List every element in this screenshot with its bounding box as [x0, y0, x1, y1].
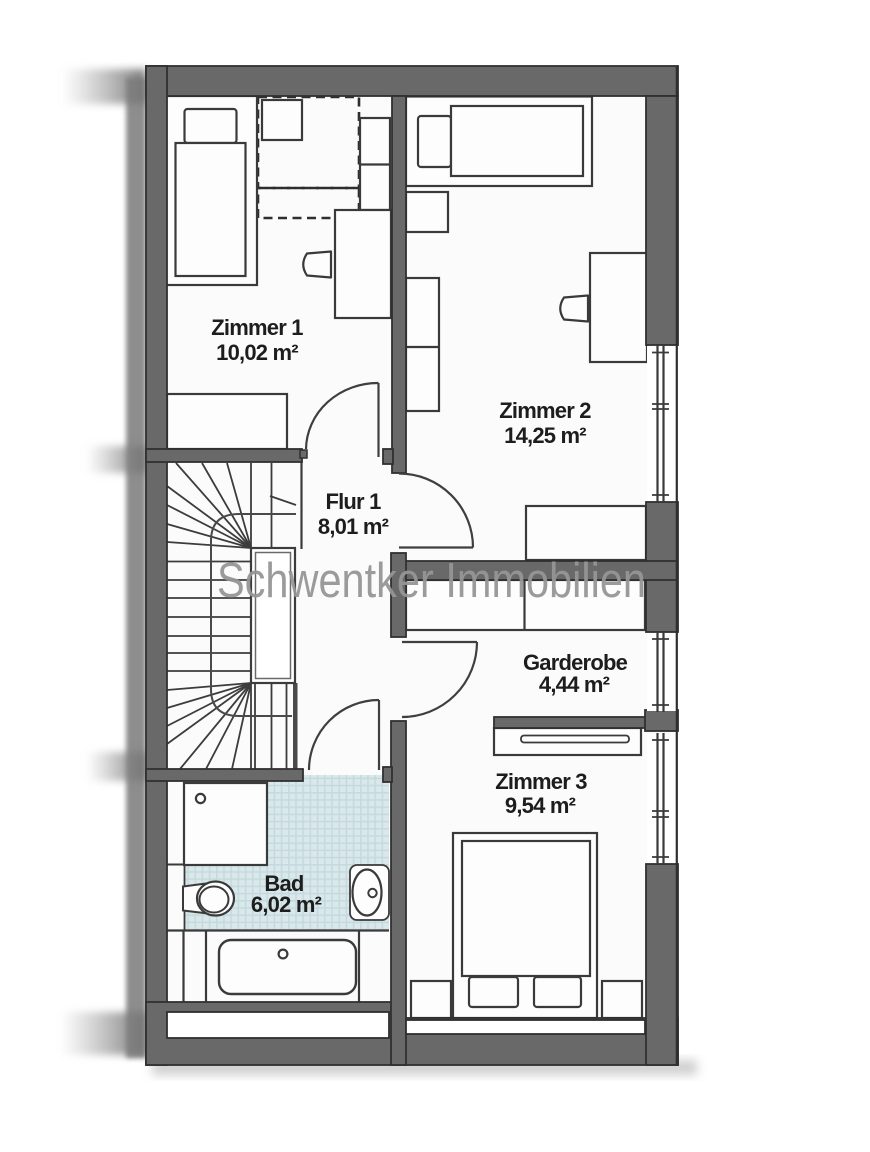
svg-text:10,02 m²: 10,02 m² [216, 340, 298, 365]
svg-text:14,25 m²: 14,25 m² [504, 423, 586, 448]
svg-text:Zimmer 1: Zimmer 1 [211, 315, 303, 340]
svg-text:Zimmer 2: Zimmer 2 [499, 398, 591, 423]
svg-text:8,01 m²: 8,01 m² [318, 514, 389, 539]
svg-text:Zimmer 3: Zimmer 3 [495, 769, 587, 794]
svg-text:4,44 m²: 4,44 m² [539, 672, 610, 697]
svg-text:Flur 1: Flur 1 [325, 489, 381, 514]
svg-text:Schwentker Immobilien: Schwentker Immobilien [217, 554, 646, 608]
svg-text:9,54 m²: 9,54 m² [505, 793, 576, 818]
svg-text:6,02 m²: 6,02 m² [251, 892, 322, 917]
